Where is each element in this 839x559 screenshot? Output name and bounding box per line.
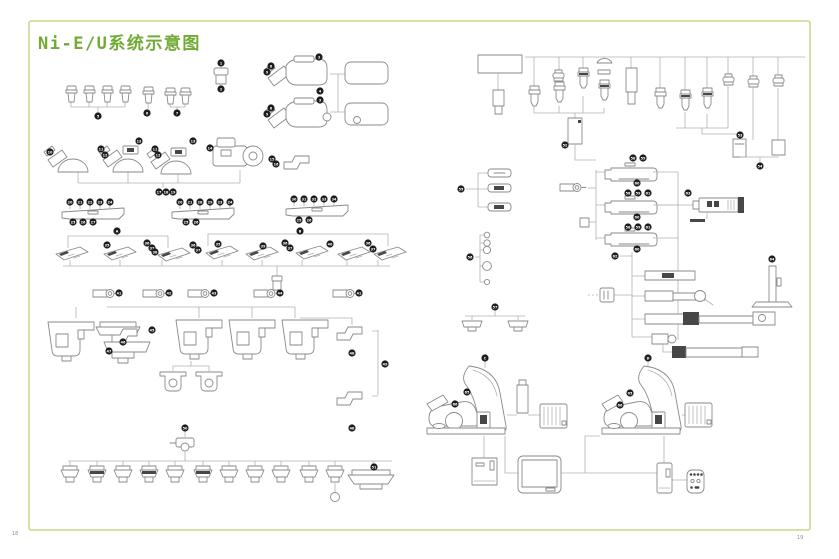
part-number-badge-label: 27 (91, 220, 96, 224)
camera-heads-top (264, 56, 388, 128)
part-number-badge-label: 59 (641, 156, 646, 160)
condenser-row (61, 461, 394, 502)
part-number-badge-label: 35 (105, 243, 110, 247)
part-number-badge-label: 48 (350, 351, 355, 355)
part-number-badge-label: A (116, 229, 119, 233)
part-number-badge-label: 47 (107, 349, 112, 353)
part-number-badge-label: 24 (228, 200, 233, 204)
microscope-body-right (602, 362, 712, 434)
part-number-badge-label: 20 (178, 200, 183, 204)
tube-adapter (214, 68, 228, 84)
part-number-badge-label: B (299, 229, 302, 233)
part-number-badge-label: 16 (274, 162, 279, 166)
part-number-badge-label: 39 (261, 244, 266, 248)
part-number-badge-label: 37 (196, 248, 201, 252)
part-number-badge-label: 37 (288, 246, 293, 250)
part-number-badge-label: 26 (307, 218, 312, 222)
part-number-badge-label: 11 (99, 147, 104, 151)
part-number-badge-label: 15 (270, 157, 275, 161)
objectives-tree (478, 55, 805, 162)
part-number-badge-label: 22 (88, 200, 93, 204)
page-number-left: 18 (12, 531, 18, 537)
part-number-badge-label: 58 (631, 156, 636, 160)
part-number-badge-label: 59 (636, 225, 641, 229)
part-number-badge-label: 43 (212, 291, 217, 295)
part-number-badge-label: 49 (383, 362, 388, 366)
part-number-badge-label: 36 (366, 241, 371, 245)
part-number-badge-label: 66 (618, 403, 623, 407)
part-number-badge-label: 36 (145, 241, 150, 245)
eyepiece-group (66, 86, 191, 112)
part-number-badge-label: 23 (98, 200, 103, 204)
part-number-badge-label: 30 (292, 197, 297, 201)
part-number-badge-label: 26 (194, 220, 199, 224)
part-number-badge-label: 25 (71, 220, 76, 224)
part-number-badge-label: 14 (208, 146, 213, 150)
filter-circle-column (475, 232, 491, 284)
part-number-badge-label: 28 (198, 200, 203, 204)
part-number-badge-label: 44 (278, 291, 283, 295)
focus-column (752, 266, 792, 307)
part-number-badge-label: 23 (218, 200, 223, 204)
part-number-badge-label: 41 (117, 291, 122, 295)
touch-monitor (518, 456, 561, 493)
part-number-badge-label: 20 (68, 200, 73, 204)
part-number-badge-label: 21 (78, 200, 83, 204)
observation-heads-row (44, 138, 309, 188)
part-number-badge-label: 38 (153, 250, 158, 254)
part-number-badge-label: 59 (636, 191, 641, 195)
analyzer-slider-row (93, 290, 359, 298)
part-number-badge-label: 34 (332, 197, 337, 201)
part-number-badge-label: 29 (208, 200, 213, 204)
part-number-badge-label: 57 (493, 305, 498, 309)
part-number-badge-label: 11 (153, 147, 158, 151)
epi-illuminator-stack (560, 163, 678, 340)
part-number-badge-label: 31 (302, 197, 307, 201)
filter-tray-column (466, 169, 511, 211)
part-number-badge-label: 54 (758, 164, 763, 168)
part-number-badge-label: 24 (108, 200, 113, 204)
part-number-badge-label: 66 (453, 402, 458, 406)
part-number-badge-label: 58 (626, 191, 631, 195)
part-number-badge-label: 10 (48, 150, 53, 154)
part-number-badge-label: 52 (563, 143, 568, 147)
part-number-badge-label: 13 (191, 139, 196, 143)
part-number-badge-label: 51 (372, 465, 377, 469)
lamp-assembly (170, 432, 194, 461)
part-number-badge-label: 26 (81, 220, 86, 224)
part-number-badge-label: 42 (167, 291, 172, 295)
part-number-badge-label: 53 (738, 133, 743, 137)
part-number-badge-label: 61 (646, 191, 651, 195)
part-number-badge-label: 21 (188, 200, 193, 204)
part-number-badge-label: 46 (121, 340, 126, 344)
part-number-badge-label: 62 (613, 254, 618, 258)
part-number-badge-label: 65 (628, 391, 633, 395)
part-number-badge-label: 12 (103, 153, 108, 157)
part-number-badge-label: 58 (626, 225, 631, 229)
part-number-badge-label: 55 (459, 187, 464, 191)
remote-control (687, 470, 704, 493)
microscope-body-left (427, 362, 567, 434)
part-number-badge-label: 36 (191, 243, 196, 247)
page: 5671238943891011121311121314151617181920… (0, 0, 839, 559)
part-number-badge-label: 50 (183, 426, 188, 430)
part-number-badge-label: D (647, 356, 650, 360)
part-number-badge-label: 60 (635, 215, 640, 219)
part-number-badge-label: 37 (371, 247, 376, 251)
part-number-badge-label: 25 (184, 220, 189, 224)
nosepiece-bars (62, 202, 348, 219)
part-number-badge-label: 60 (635, 181, 640, 185)
part-number-badge-label: 18 (164, 190, 169, 194)
page-number-right: 19 (797, 535, 803, 541)
part-number-badge-label: 33 (322, 197, 327, 201)
controller (657, 463, 672, 493)
part-number-badge-label: 32 (312, 197, 317, 201)
lamp-socket-pair (462, 311, 528, 331)
stage-group (48, 307, 328, 391)
part-number-badge-label: 56 (468, 255, 473, 259)
system-diagram: 5671238943891011121311121314151617181920… (0, 0, 839, 559)
illumination-arms (588, 252, 775, 358)
part-number-badge-label: 19 (171, 190, 176, 194)
part-number-badge-label: 35 (216, 242, 221, 246)
power-supply (472, 458, 497, 485)
part-number-badge-label: 64 (770, 257, 775, 261)
page-title: Ni-E/U系统示意图 (38, 29, 201, 54)
part-number-badge-label: 65 (465, 390, 470, 394)
part-number-badge-label: 40 (328, 242, 333, 246)
part-number-badge-label: 41 (357, 291, 362, 295)
part-number-badge-label: 48 (350, 426, 355, 430)
part-number-badge-label: 13 (137, 139, 142, 143)
part-number-badge-label: 25 (297, 218, 302, 222)
part-number-badge-label: 17 (157, 190, 162, 194)
part-number-badge-label: 60 (635, 247, 640, 251)
part-number-badge-label: 61 (646, 225, 651, 229)
lamphouse (655, 197, 744, 222)
part-number-badge-label: 12 (156, 153, 161, 157)
part-number-badge-label: 63 (686, 191, 691, 195)
part-number-badge-label: 36 (283, 241, 288, 245)
part-number-badge-label: 45 (150, 328, 155, 332)
